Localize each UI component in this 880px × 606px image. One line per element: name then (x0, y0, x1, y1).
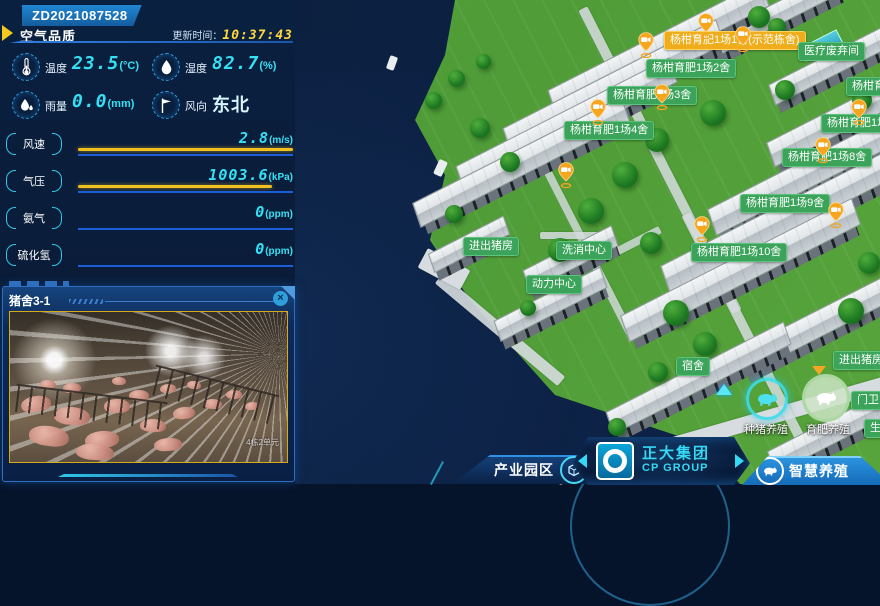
pig (112, 376, 126, 384)
tree (648, 362, 668, 382)
tree (608, 418, 626, 436)
building-label[interactable]: 洗消中心 (556, 241, 612, 260)
tree (858, 252, 880, 274)
rain-drop-icon (12, 91, 40, 119)
metric-value: 82.7(%) (212, 53, 276, 74)
tree (476, 54, 491, 69)
gauge-风速: 风速2.8(m/s) (6, 131, 293, 165)
metric-value: 0.0(mm) (72, 91, 134, 112)
gauge-baseline (78, 228, 293, 230)
tree (640, 232, 662, 254)
gauge-value: 0(ppm) (255, 240, 293, 258)
tab-smart-farming-label: 智慧养殖 (789, 461, 849, 481)
brand-sub: CP GROUP (642, 461, 710, 476)
camera-pin-icon[interactable] (558, 162, 574, 189)
gauge-气压: 气压1003.6(kPa) (6, 168, 293, 202)
gauge-baseline (78, 154, 293, 156)
tree (500, 152, 520, 172)
tab-industry-park-label: 产业园区 (494, 460, 554, 480)
chevron-right-icon[interactable] (735, 454, 744, 468)
building-label[interactable]: 杨柑育肥1场9舍 (740, 194, 830, 213)
video-watermark: 4栋2单元 (246, 437, 279, 448)
title-pointer-icon (2, 25, 13, 41)
tree (612, 162, 638, 188)
gauge-label: 气压 (6, 170, 62, 192)
title-line-decoration (105, 301, 275, 302)
building-label[interactable]: 进出猪房 (463, 237, 519, 256)
tree (693, 332, 717, 356)
gauge-value: 2.8(m/s) (239, 129, 293, 147)
thermometer-icon (12, 53, 40, 81)
building-label[interactable]: 进出猪房 (833, 351, 880, 370)
building-label[interactable]: 杨柑育肥1场4舍 (564, 121, 654, 140)
close-icon[interactable]: × (273, 291, 288, 306)
gauge-bar (78, 148, 293, 151)
building-label[interactable]: 杨柑育肥1场6舍 (846, 77, 880, 96)
cyan-triangle-marker (716, 384, 732, 395)
camera-pin-icon[interactable] (638, 32, 654, 59)
camera-pin-icon[interactable] (735, 26, 751, 53)
cp-group-logo (596, 442, 634, 480)
camera-pin-icon[interactable] (828, 202, 844, 229)
building-label[interactable]: 杨柑育肥1场3舍 (607, 86, 697, 105)
pig (154, 437, 183, 452)
camera-pin-icon[interactable] (851, 99, 867, 126)
update-time: 更新时间：10:37:43 (172, 27, 293, 43)
gauge-label: 风速 (6, 133, 62, 155)
camera-panel: 猪舍3-1 × 4栋2单元 (2, 286, 295, 482)
building-label[interactable]: 动力中心 (526, 275, 582, 294)
tree (425, 92, 442, 109)
tree (448, 70, 465, 87)
metric-湿度: 湿度82.7(%) (152, 53, 292, 87)
device-id-badge: ZD2021087528 (22, 5, 142, 26)
gauge-label: 硫化氢 (6, 244, 62, 266)
camera-video-feed[interactable]: 4栋2单元 (9, 311, 288, 463)
camera-panel-title: 猪舍3-1 (9, 292, 50, 309)
title-dashes-decoration (69, 299, 103, 304)
camera-pin-icon[interactable] (698, 13, 714, 40)
building-label[interactable]: 宿舍 (676, 357, 710, 376)
gauge-硫化氢: 硫化氢0(ppm) (6, 242, 293, 276)
title-underline (10, 41, 293, 43)
pen-fence (152, 366, 283, 426)
metric-label: 湿度 (185, 60, 207, 76)
building-label[interactable]: 医疗废弃间 (798, 42, 865, 61)
pig (173, 405, 196, 419)
update-time-value: 10:37:43 (222, 28, 293, 43)
pig (28, 423, 70, 448)
camera-pin-icon[interactable] (654, 84, 670, 111)
chevron-left-icon[interactable] (578, 454, 587, 468)
gauge-value: 0(ppm) (255, 203, 293, 221)
panel-bottom-decoration (58, 474, 238, 477)
tree (700, 100, 726, 126)
left-panel: ZD2021087528 空气品质 更新时间：10:37:43 温度23.5(°… (0, 0, 295, 484)
tree (470, 118, 490, 138)
fattening-pig-icon[interactable] (802, 374, 850, 422)
camera-pin-icon[interactable] (590, 99, 606, 126)
tree (775, 80, 795, 100)
metric-label: 风向 (185, 98, 207, 114)
poi-caption[interactable]: 种猪养殖 (744, 421, 788, 437)
building-label[interactable]: 杨柑育肥1场10舍 (691, 243, 787, 262)
gauge-bar (78, 185, 272, 188)
metric-label: 温度 (45, 60, 67, 76)
gauge-label: 氨气 (6, 207, 62, 229)
boat (386, 55, 398, 71)
tree (520, 300, 536, 316)
panel-tab-decoration (9, 281, 69, 286)
poi-caption[interactable]: 育肥养殖 (806, 421, 850, 437)
building-label[interactable]: 杨柑育肥1场2舍 (646, 59, 736, 78)
camera-pin-icon[interactable] (815, 137, 831, 164)
building-label[interactable]: 生活区 (864, 419, 880, 438)
smart-farm-dashboard: { "device_badge": "ZD2021087528", "color… (0, 0, 880, 484)
brand-emblem: 正大集团 CP GROUP (572, 437, 750, 485)
tree (578, 198, 604, 224)
gauge-value: 1003.6(kPa) (208, 166, 293, 184)
metric-雨量: 雨量0.0(mm) (12, 91, 152, 125)
tree (838, 298, 864, 324)
breeding-pig-icon[interactable] (746, 378, 788, 420)
humidity-drop-icon (152, 53, 180, 81)
gauge-baseline (78, 191, 293, 193)
wind-flag-icon (152, 91, 180, 119)
gauge-氨气: 氨气0(ppm) (6, 205, 293, 239)
camera-pin-icon[interactable] (694, 216, 710, 243)
metric-value: 23.5(°C) (72, 53, 139, 74)
metric-label: 雨量 (45, 98, 67, 114)
brand-name: 正大集团 (642, 446, 710, 461)
tree (748, 6, 770, 28)
gauge-baseline (78, 265, 293, 267)
building-label[interactable]: 门卫 (851, 391, 880, 410)
tree (445, 205, 463, 223)
metric-风向: 风向东北 (152, 91, 292, 125)
tree (663, 300, 689, 326)
metric-value: 东北 (212, 91, 250, 117)
metric-温度: 温度23.5(°C) (12, 53, 152, 87)
